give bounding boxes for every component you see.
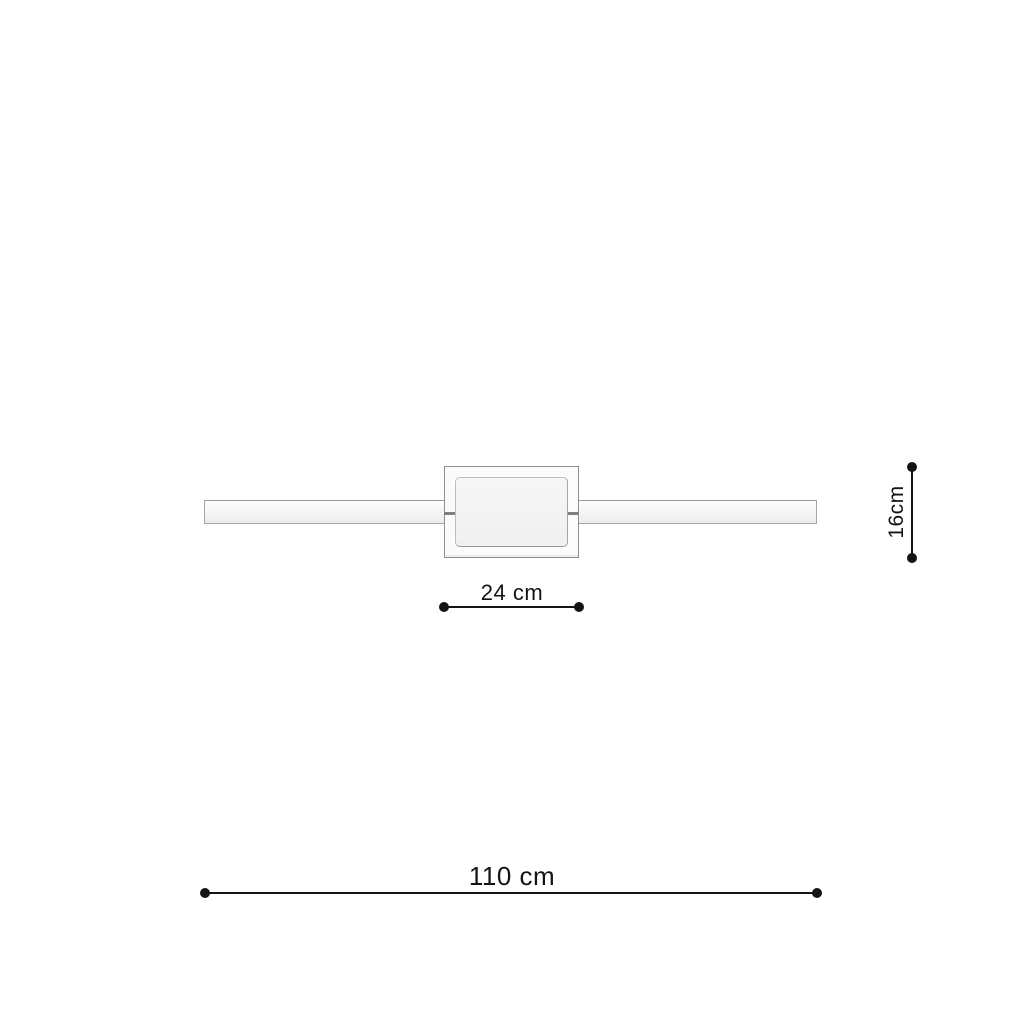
dim-label-total-width: 110 cm	[469, 861, 555, 892]
dim-dot-canopy-height-bottom	[907, 553, 917, 563]
dim-dot-total-width-end	[812, 888, 822, 898]
dim-label-canopy-height: 16cm	[885, 485, 909, 538]
dim-line-total-width	[205, 892, 817, 894]
dim-line-canopy-height	[911, 467, 913, 558]
lamp-diffuser-panel	[455, 477, 568, 547]
dim-dot-canopy-width-end	[574, 602, 584, 612]
dim-dot-total-width-start	[200, 888, 210, 898]
bar-joint-right	[568, 512, 579, 515]
dim-dot-canopy-width-start	[439, 602, 449, 612]
dim-dot-canopy-height-top	[907, 462, 917, 472]
dim-line-canopy-width	[444, 606, 579, 608]
bar-joint-left	[444, 512, 455, 515]
dim-label-canopy-width: 24 cm	[481, 580, 543, 606]
dimension-diagram: 24 cm 16cm 110 cm	[0, 0, 1024, 1024]
